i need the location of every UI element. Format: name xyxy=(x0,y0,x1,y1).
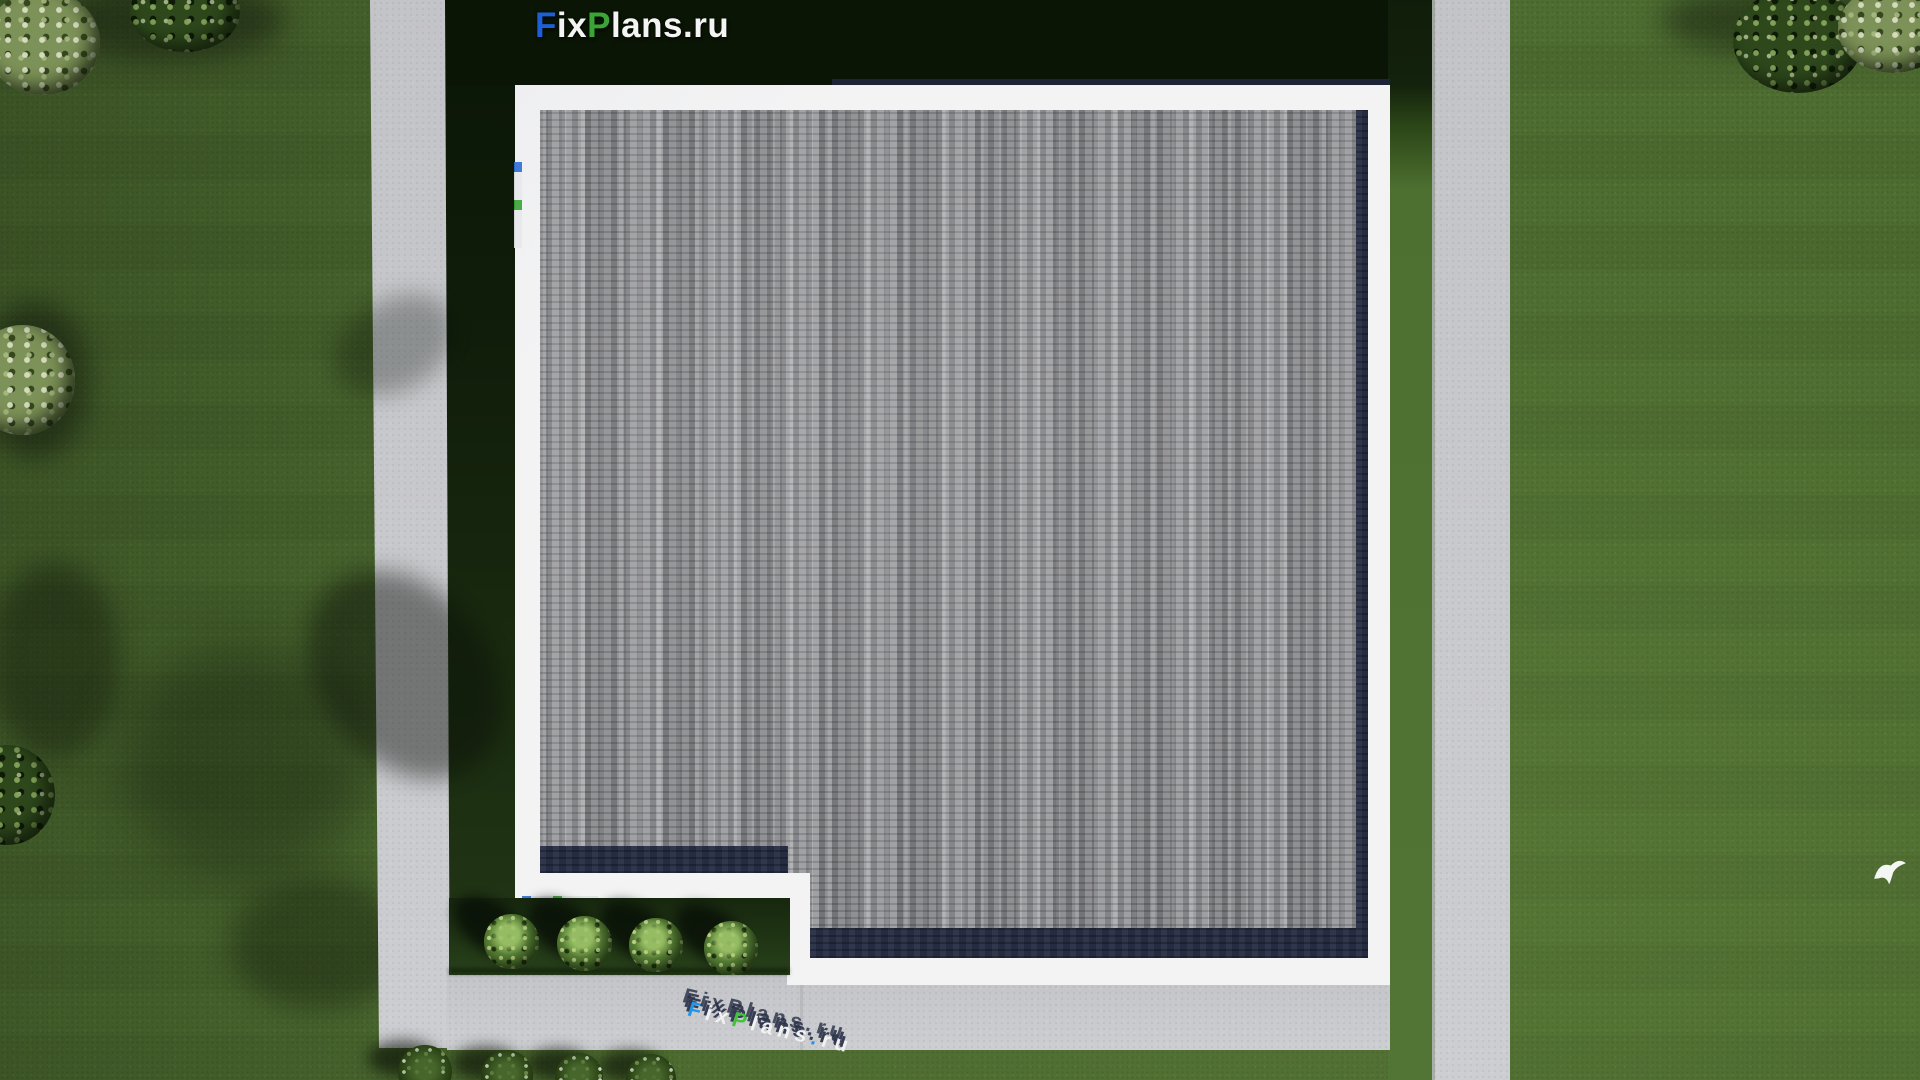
render-stage: FixPlans.ru FixPlans.ru xyxy=(0,0,1920,1080)
logo-letter-segment: P xyxy=(587,6,611,45)
brand-watermark: FixPlans.ru xyxy=(535,6,729,46)
path-right xyxy=(1432,0,1510,1080)
foundation-bush-3 xyxy=(629,918,683,972)
roof-ridge-shadow-line xyxy=(832,79,1390,86)
foundation-bush-1 xyxy=(484,914,539,969)
fascia-bottom-left xyxy=(540,846,788,873)
logo-letter-segment: F xyxy=(535,6,557,45)
house-shadow-strip-left xyxy=(445,0,515,975)
eave-watermark-vertical xyxy=(514,162,522,248)
fascia-right xyxy=(1356,110,1368,958)
foundation-bush-2 xyxy=(557,916,612,971)
watermark-blue-block xyxy=(514,162,522,172)
watermark-white-block xyxy=(514,210,522,248)
logo-letter-segment: ix xyxy=(557,6,587,45)
fascia-bottom-right xyxy=(810,928,1368,958)
logo-letter-segment: lans.ru xyxy=(611,6,729,45)
watermark-white-block xyxy=(514,172,522,200)
grass-strip-right xyxy=(1388,0,1432,1080)
foundation-bush-4 xyxy=(704,921,758,975)
path-right-edge xyxy=(1432,0,1435,1080)
watermark-green-block xyxy=(514,200,522,210)
